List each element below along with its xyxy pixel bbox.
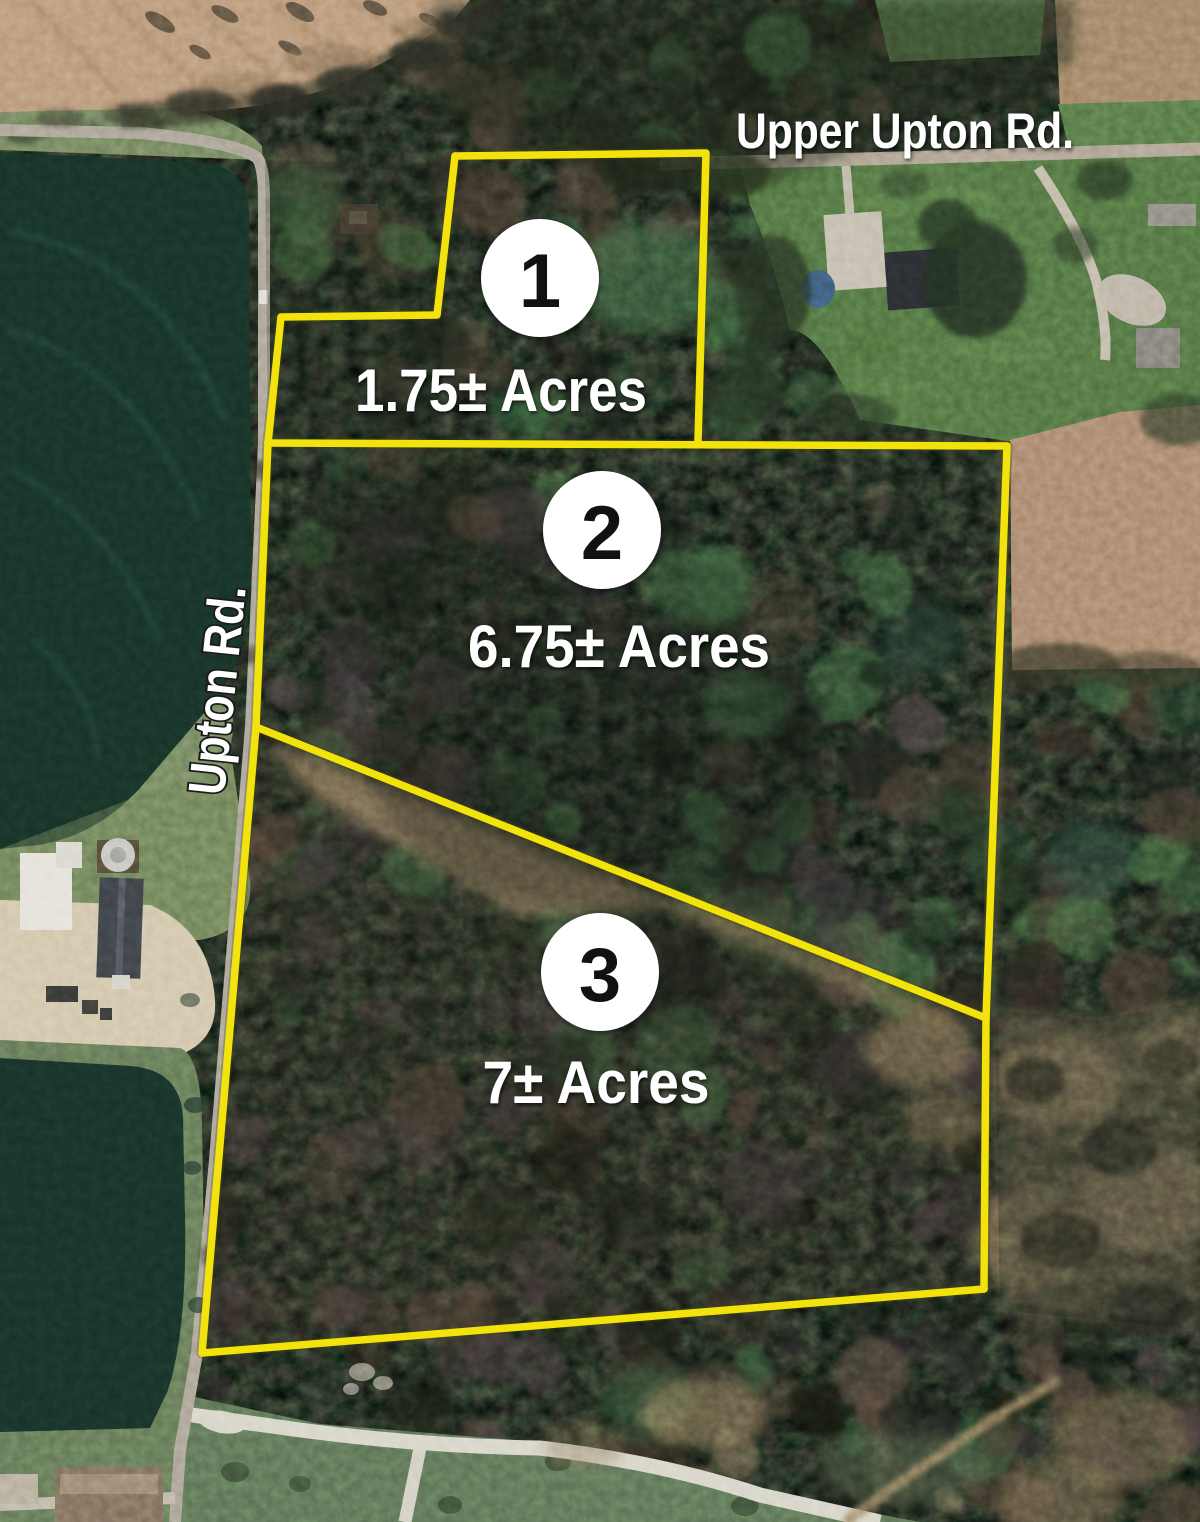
svg-text:1: 1 bbox=[519, 239, 561, 324]
svg-text:2: 2 bbox=[581, 491, 623, 576]
svg-text:Upper Upton Rd.: Upper Upton Rd. bbox=[736, 103, 1074, 159]
svg-text:6.75± Acres: 6.75± Acres bbox=[468, 613, 770, 680]
svg-text:7± Acres: 7± Acres bbox=[483, 1049, 710, 1116]
svg-text:1.75± Acres: 1.75± Acres bbox=[355, 357, 647, 424]
svg-text:3: 3 bbox=[579, 933, 621, 1018]
